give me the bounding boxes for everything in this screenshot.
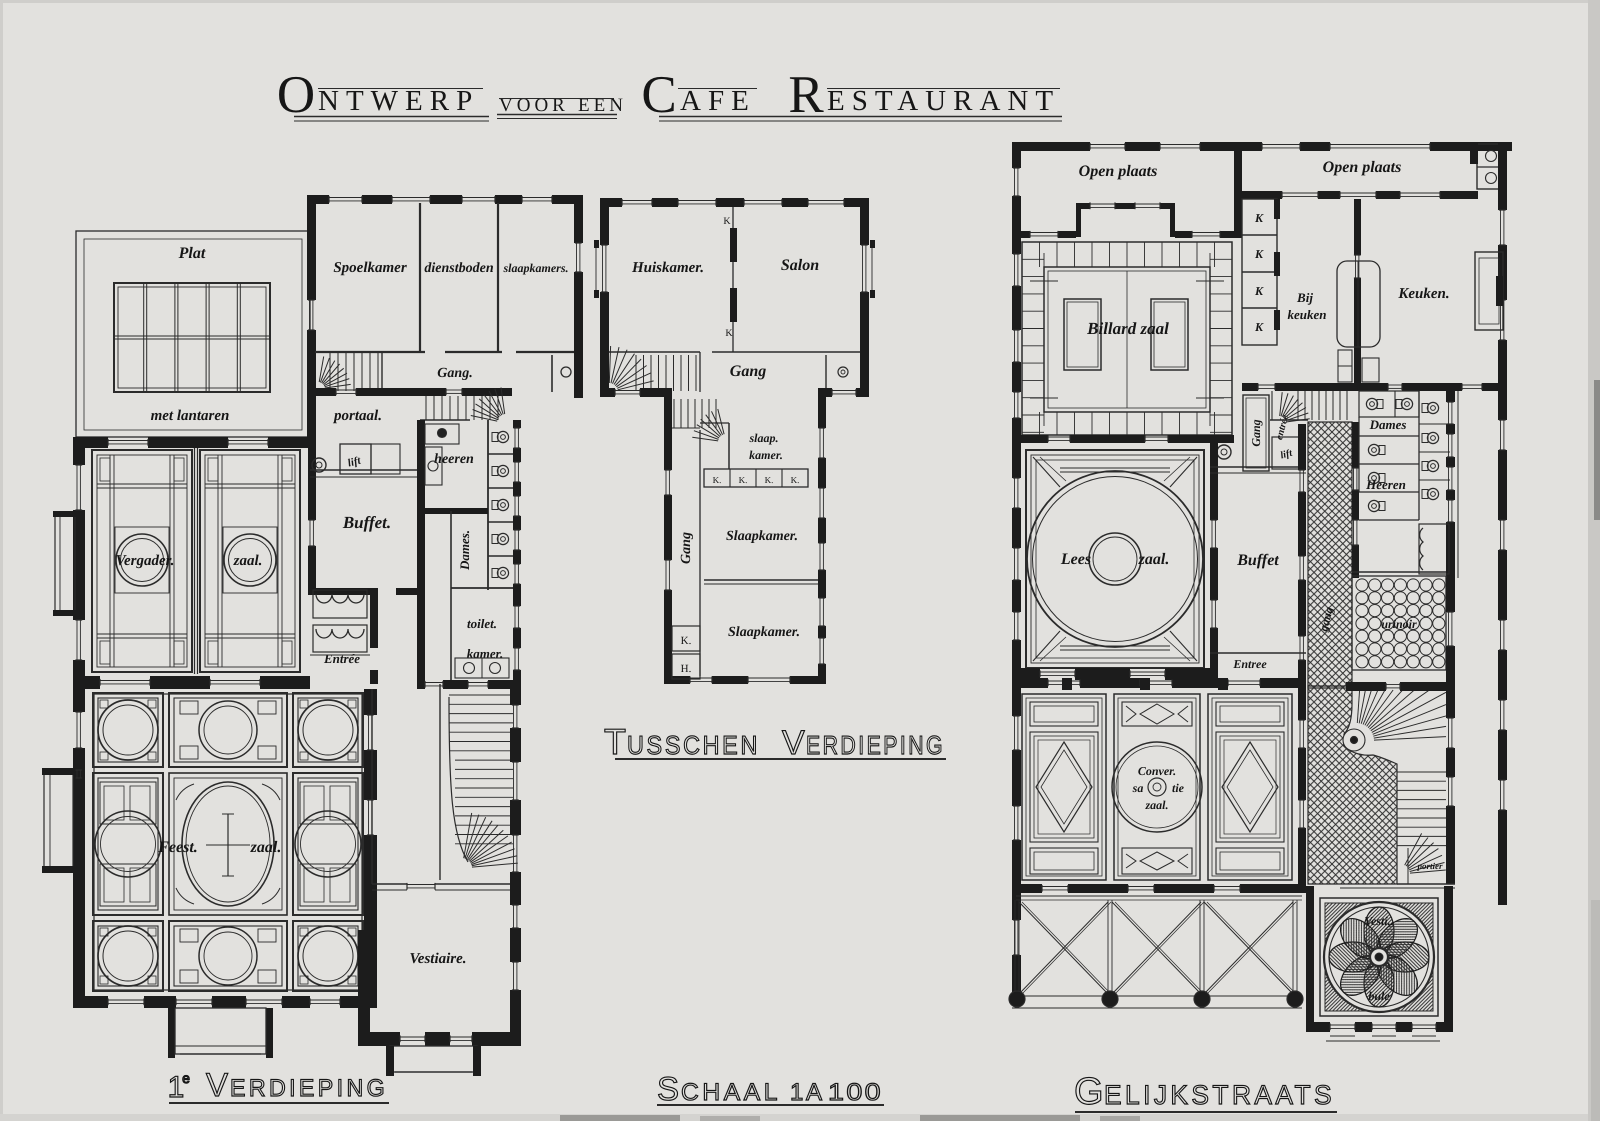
svg-text:sa: sa [1132, 781, 1144, 795]
svg-text:bule: bule [1368, 989, 1390, 1003]
svg-text:V: V [206, 1066, 228, 1103]
svg-text:K.: K. [791, 475, 800, 485]
svg-text:met lantaren: met lantaren [151, 408, 230, 424]
svg-text:A: A [806, 1079, 822, 1106]
svg-text:K.: K. [765, 475, 774, 485]
svg-text:Billard zaal: Billard zaal [1086, 319, 1169, 338]
svg-text:Gang: Gang [730, 363, 766, 380]
svg-text:slaap.: slaap. [748, 431, 778, 445]
svg-text:ESTAURANT: ESTAURANT [827, 85, 1060, 117]
svg-text:Bij: Bij [1296, 290, 1313, 305]
svg-text:Buffet.: Buffet. [342, 513, 391, 532]
svg-text:K.: K. [739, 475, 748, 485]
svg-text:portier: portier [1416, 861, 1442, 871]
svg-text:T: T [604, 721, 626, 762]
svg-text:1: 1 [790, 1079, 803, 1106]
svg-text:R: R [788, 66, 824, 124]
svg-text:K: K [725, 328, 733, 339]
svg-text:AFE: AFE [680, 85, 756, 117]
svg-text:urinoir: urinoir [1381, 617, 1417, 631]
svg-text:S: S [657, 1070, 679, 1107]
svg-text:slaapkamers.: slaapkamers. [502, 261, 568, 275]
svg-text:K: K [1254, 247, 1264, 261]
svg-text:100: 100 [828, 1079, 883, 1106]
svg-text:Vestiaire.: Vestiaire. [409, 951, 466, 967]
svg-text:keuken: keuken [1288, 307, 1327, 322]
svg-text:CHAAL: CHAAL [681, 1079, 781, 1106]
svg-text:heeren: heeren [434, 452, 474, 467]
svg-text:K.: K. [681, 635, 692, 647]
svg-text:USSCHEN: USSCHEN [627, 730, 760, 760]
svg-text:Open plaats: Open plaats [1323, 159, 1402, 176]
svg-text:ERDIEPING: ERDIEPING [806, 730, 945, 760]
svg-text:Slaapkamer.: Slaapkamer. [726, 529, 798, 544]
svg-text:Keuken.: Keuken. [1397, 286, 1449, 302]
svg-text:kamer.: kamer. [467, 646, 503, 661]
svg-text:K.: K. [713, 475, 722, 485]
svg-text:G: G [1074, 1071, 1104, 1113]
svg-text:Dames: Dames [1369, 417, 1407, 432]
svg-text:portaal.: portaal. [332, 408, 382, 424]
svg-text:zaal.: zaal. [233, 553, 263, 569]
svg-text:H.: H. [681, 663, 692, 675]
svg-text:Gang.: Gang. [437, 366, 472, 381]
svg-text:Vergader.: Vergader. [116, 553, 175, 569]
svg-text:dienstboden: dienstboden [424, 261, 493, 276]
svg-text:NTWERP: NTWERP [318, 85, 479, 117]
svg-text:K: K [723, 216, 731, 227]
svg-text:O: O [277, 66, 315, 124]
svg-text:e: e [182, 1070, 190, 1086]
svg-text:toilet.: toilet. [467, 616, 497, 631]
svg-text:ELIJKSTRAATS: ELIJKSTRAATS [1104, 1080, 1335, 1110]
svg-text:Gang: Gang [1249, 419, 1263, 446]
svg-text:Huiskamer.: Huiskamer. [631, 260, 704, 276]
svg-text:Buffet: Buffet [1236, 552, 1279, 569]
svg-text:Open plaats: Open plaats [1079, 163, 1158, 180]
svg-text:zaal.: zaal. [1138, 551, 1170, 568]
svg-text:K: K [1254, 320, 1264, 334]
svg-text:V: V [782, 724, 805, 762]
svg-text:Vesti..: Vesti.. [1364, 914, 1393, 928]
svg-text:Conver.: Conver. [1138, 764, 1176, 778]
svg-text:Salon: Salon [781, 257, 819, 274]
svg-text:Heeren: Heeren [1365, 477, 1406, 492]
svg-text:C: C [641, 66, 676, 124]
svg-text:Entree: Entree [1232, 657, 1267, 671]
svg-text:Lees: Lees [1060, 551, 1091, 568]
svg-text:Plat: Plat [178, 245, 206, 262]
svg-text:Feest.: Feest. [157, 839, 198, 856]
svg-text:Dames.: Dames. [457, 530, 472, 571]
svg-text:ERDIEPING: ERDIEPING [230, 1075, 388, 1102]
svg-text:zaal.: zaal. [1144, 798, 1168, 812]
svg-text:tie: tie [1172, 781, 1185, 795]
svg-text:K: K [1254, 211, 1264, 225]
svg-text:Spoelkamer: Spoelkamer [333, 260, 406, 276]
svg-text:Entrée: Entrée [323, 651, 360, 666]
svg-text:K: K [1254, 284, 1264, 298]
svg-text:Gang: Gang [679, 532, 694, 564]
svg-text:Slaapkamer.: Slaapkamer. [728, 625, 800, 640]
svg-text:zaal.: zaal. [250, 839, 282, 856]
svg-text:kamer.: kamer. [749, 448, 783, 462]
